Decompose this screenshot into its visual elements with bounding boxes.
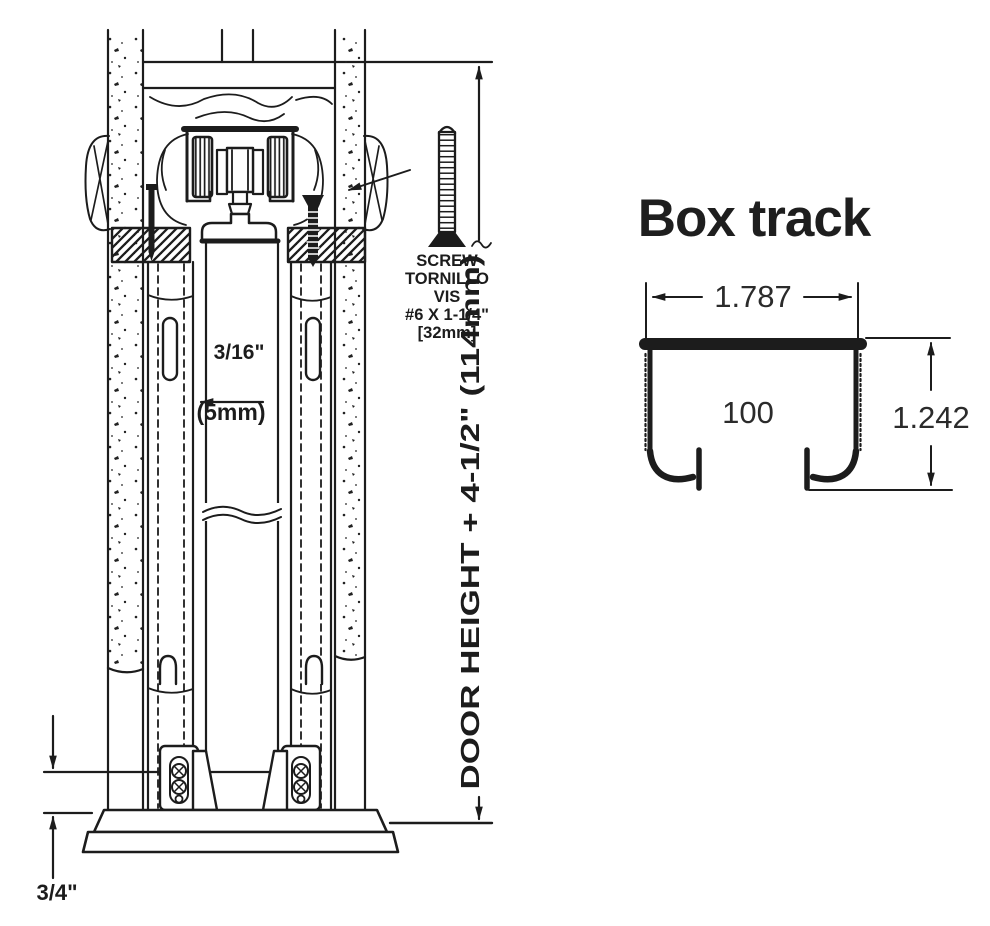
box-track-title: Box track	[638, 189, 872, 248]
box-track-profile-number: 100	[722, 395, 774, 430]
box-track-height-dimension: 1.242	[892, 400, 970, 435]
sill-board-bottom	[83, 832, 398, 852]
door-panel	[200, 243, 284, 772]
floor-guide-right	[263, 746, 320, 810]
gap-dimension-inches: 3/16"	[214, 341, 265, 364]
box-track-detail: Box track	[638, 189, 970, 490]
screw-illustration	[428, 127, 466, 247]
header-framing	[143, 30, 492, 88]
floor-clearance-dimension-line	[44, 716, 92, 878]
pocket-door-installation-diagram: 3/16" (5mm) SCREW TORNILLO VIS #6 X 1-1/…	[0, 0, 990, 926]
jamb-bottom-slot-right	[306, 656, 322, 684]
outer-casing-left	[86, 136, 111, 230]
box-track-width-dimension: 1.787	[714, 279, 792, 314]
break-squiggle	[472, 241, 491, 247]
door-height-dimension-label: DOOR HEIGHT + 4-1/2" (114mm)	[455, 255, 485, 790]
jamb-bottom-slot-left	[160, 656, 176, 684]
hanger-trolley	[193, 137, 287, 241]
floor-clearance-dimension-label: 3/4"	[36, 880, 77, 905]
floor-area	[44, 746, 492, 852]
sill-board-top	[94, 810, 387, 832]
floor-guide-left	[160, 746, 217, 810]
jamb-slot-right	[306, 318, 320, 380]
outer-casing-right	[363, 136, 388, 230]
gap-dimension-metric: (5mm)	[196, 399, 265, 425]
jamb-slot-left	[163, 318, 177, 380]
